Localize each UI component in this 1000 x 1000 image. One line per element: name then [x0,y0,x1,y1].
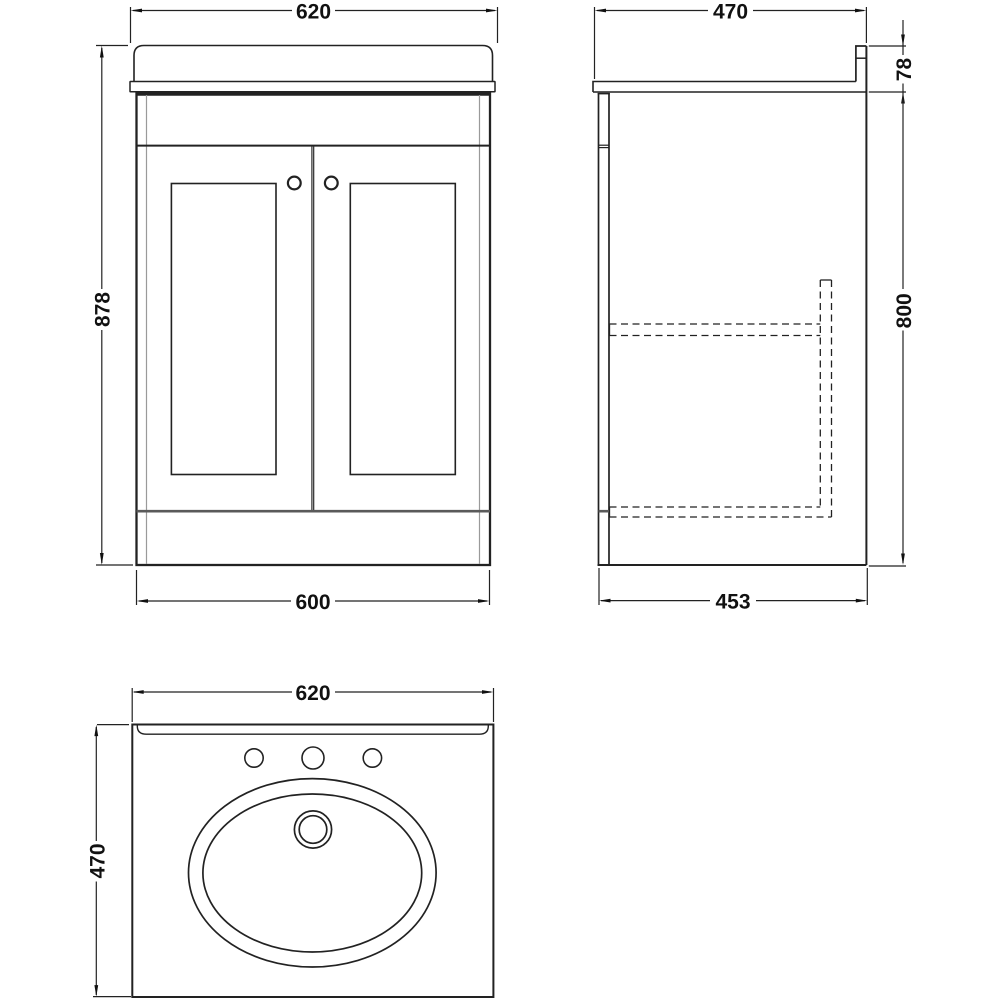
svg-text:78: 78 [893,58,916,82]
svg-text:600: 600 [295,591,330,614]
svg-text:453: 453 [715,591,750,614]
svg-text:620: 620 [296,1,331,24]
svg-text:878: 878 [92,292,115,327]
svg-text:620: 620 [295,682,330,705]
svg-text:470: 470 [86,843,109,878]
svg-text:470: 470 [713,1,748,24]
svg-text:800: 800 [893,293,916,328]
